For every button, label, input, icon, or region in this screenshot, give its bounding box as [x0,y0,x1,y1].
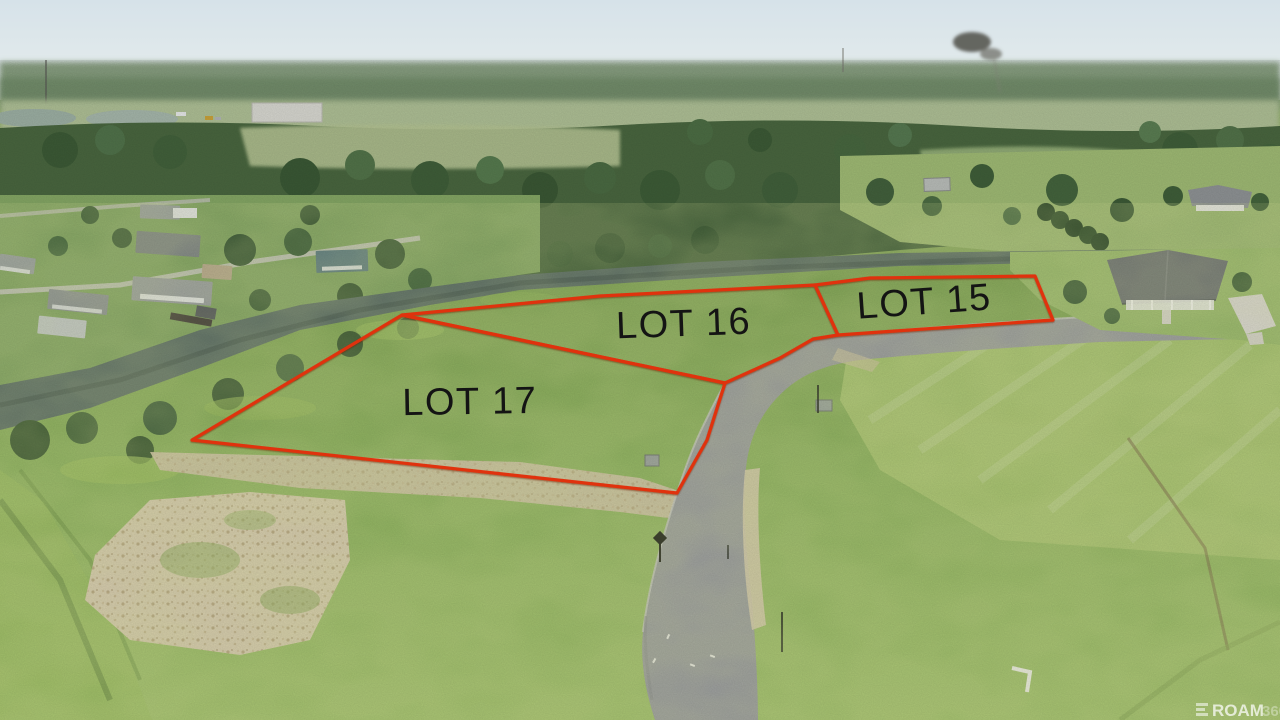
watermark-text: ROAM [1212,701,1264,720]
lot-17-label: LOT 17 [402,380,538,424]
industrial-building [252,103,322,122]
lot-16-label: LOT 16 [615,301,751,348]
watermark-suffix: 360 [1262,703,1280,720]
aerial-photo: LOT 15 LOT 16 LOT 17 ROAM 360 [0,0,1280,720]
photo-grain [0,120,1280,720]
aerial-photo-canvas: LOT 15 LOT 16 LOT 17 ROAM 360 [0,0,1280,720]
